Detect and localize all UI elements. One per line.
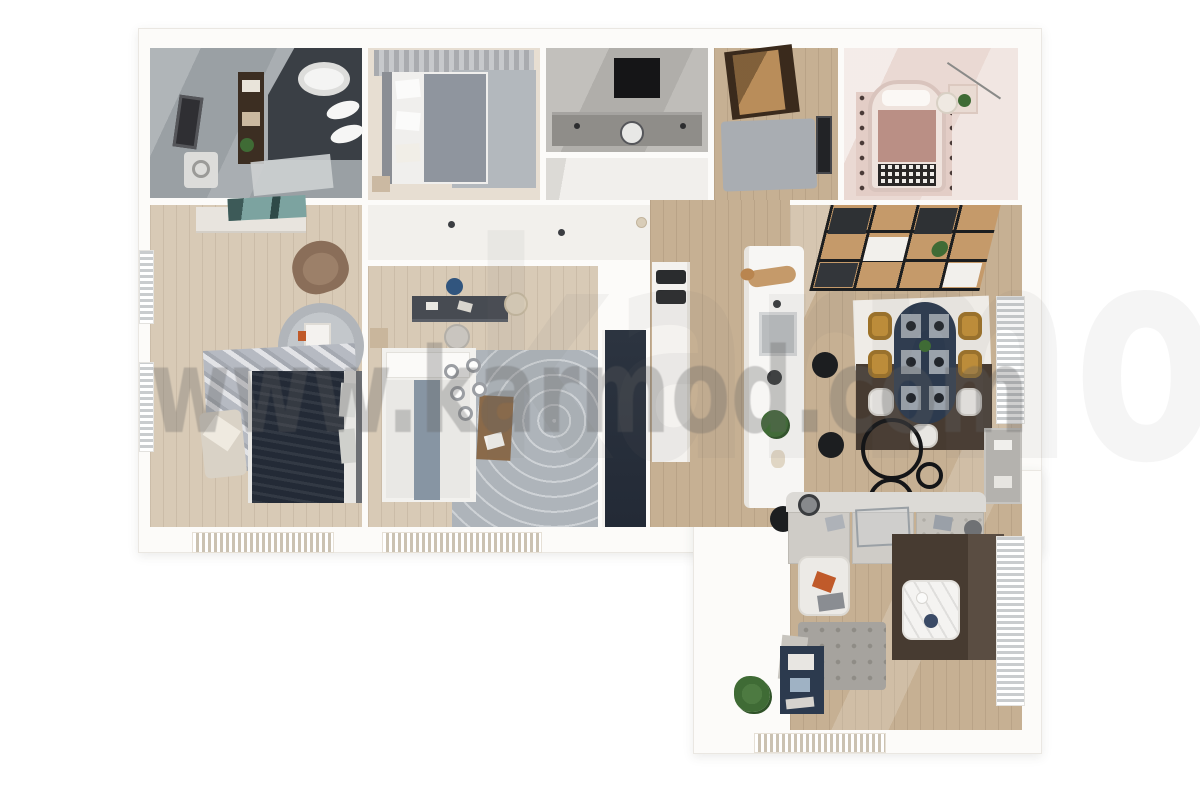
placemat — [901, 350, 921, 374]
floor-lamp-shade — [936, 92, 958, 114]
dining-chair-mustard — [868, 312, 892, 340]
kids-blanket — [878, 110, 936, 162]
washer-front — [620, 121, 644, 145]
window-dining — [996, 296, 1025, 424]
kitchen-cabinets — [652, 262, 690, 462]
placemat — [901, 314, 921, 338]
cooktop — [656, 290, 686, 304]
side-table-round — [798, 494, 820, 516]
blue-bowl — [446, 278, 463, 295]
pillow — [395, 111, 420, 131]
wall-screen — [614, 58, 660, 98]
table-deco-navy — [924, 614, 938, 628]
pendant-bulb — [458, 406, 473, 421]
utility-room — [546, 48, 708, 152]
entry-rug — [721, 118, 817, 191]
faucet-dot — [680, 123, 686, 129]
pendant-lamp-beige — [504, 292, 528, 316]
sideboard-deco — [994, 440, 1012, 450]
kids-pillow — [882, 90, 930, 106]
faucet-dot — [773, 300, 781, 308]
gray-throw — [817, 592, 845, 611]
desk-items — [457, 300, 473, 312]
pillow — [395, 143, 420, 163]
deco-orange — [298, 331, 306, 341]
plate — [934, 321, 944, 331]
desk-items — [426, 302, 438, 310]
headboard — [382, 72, 392, 184]
leaning-mirror — [816, 116, 832, 174]
ring-chandelier — [916, 462, 943, 489]
entry-hall — [714, 48, 838, 200]
throw-blanket — [414, 380, 440, 500]
folded-blanket — [203, 415, 241, 452]
pendant-dot — [636, 217, 647, 228]
bathroom-console — [238, 72, 264, 164]
wardrobe-navy — [602, 330, 646, 527]
placemat — [929, 386, 949, 410]
pendant-bulb — [466, 358, 481, 373]
plate — [934, 357, 944, 367]
shelf-dark-box — [913, 208, 957, 234]
cooktop — [656, 270, 686, 284]
washing-machine — [184, 152, 218, 188]
plate — [906, 393, 916, 403]
plant-small — [240, 138, 254, 152]
dining-chair-mustard — [868, 350, 892, 378]
placemat — [901, 386, 921, 410]
checkered-throw — [878, 164, 936, 186]
deco-vase — [771, 450, 785, 468]
wall-art — [227, 195, 306, 221]
pendant-dot — [558, 229, 565, 236]
bathroom — [150, 48, 362, 198]
table-deco-dish — [916, 592, 928, 604]
island-sink — [759, 312, 797, 356]
bench-ottoman — [199, 409, 248, 479]
duvet — [424, 74, 486, 182]
bed-navy — [248, 371, 360, 503]
bedroom-top — [368, 48, 540, 200]
placemat — [929, 350, 949, 374]
dining-chair-white — [956, 388, 982, 416]
shelf-white-box — [942, 263, 982, 287]
master-bedroom — [150, 205, 362, 527]
bar-stool — [818, 432, 844, 458]
bed-double — [382, 72, 488, 184]
window-exterior-south — [382, 532, 542, 553]
window-exterior-south — [192, 532, 334, 553]
desk-chair — [444, 324, 470, 350]
towel-stack — [242, 80, 260, 92]
plant-small — [958, 94, 971, 107]
kids-bed — [868, 80, 946, 192]
dining-table — [894, 302, 956, 424]
table-centerpiece — [919, 340, 931, 352]
ring-chandelier — [861, 418, 923, 480]
window-living — [996, 536, 1025, 706]
pendant-bulb — [450, 386, 465, 401]
coffee-table-marble — [902, 580, 960, 640]
sofa-pillow — [933, 515, 953, 532]
basket — [242, 112, 260, 126]
plate — [906, 357, 916, 367]
dining-chair-mustard — [958, 350, 982, 378]
dining-chair-white — [868, 388, 894, 416]
shelf-white-box — [863, 237, 909, 261]
floor-plan-render: karmod.com www.karmod.com — [0, 0, 1200, 800]
door-panel — [733, 50, 786, 115]
bed-double — [382, 348, 476, 502]
fruit-bowl — [767, 370, 782, 385]
pillow — [339, 428, 358, 463]
pendant-bulb — [444, 364, 459, 379]
pillow — [395, 79, 421, 99]
entry-door — [724, 44, 800, 120]
laundry-counter — [552, 112, 702, 146]
media-console-navy — [780, 646, 824, 714]
plate — [934, 393, 944, 403]
shelf-dark-box — [827, 208, 871, 234]
closet — [546, 158, 708, 200]
shelving-unit — [809, 205, 1000, 291]
console-item — [788, 654, 814, 670]
dog-head — [740, 267, 756, 281]
nightstand — [372, 176, 390, 192]
washer-door — [192, 160, 210, 178]
pillow — [339, 382, 357, 417]
armchair-white — [798, 556, 850, 616]
plate — [906, 321, 916, 331]
window-left — [139, 250, 154, 324]
armchair-cushion — [299, 248, 343, 290]
bathtub — [298, 62, 350, 96]
magazine — [484, 432, 505, 450]
console-item — [786, 697, 815, 710]
bath-rug — [250, 154, 333, 196]
desk — [412, 296, 508, 322]
sideboard-gray — [984, 428, 1022, 504]
navy-duvet — [252, 371, 344, 503]
shelf-plant — [930, 241, 950, 257]
bedroom-middle — [368, 266, 598, 527]
placemat — [929, 314, 949, 338]
faucet-dot — [574, 123, 580, 129]
headboard — [356, 371, 362, 503]
bar-stool — [812, 352, 838, 378]
sideboard-deco — [994, 476, 1012, 488]
pendant-dot — [448, 221, 455, 228]
floor-plant — [734, 676, 770, 712]
orange-pillow — [812, 571, 836, 593]
window-left — [139, 362, 154, 452]
bench-wood — [476, 395, 513, 461]
kids-room — [844, 48, 1018, 200]
island-plant — [761, 410, 788, 437]
pendant-bulb — [472, 382, 487, 397]
dining-chair-mustard — [958, 312, 982, 340]
console-item — [790, 678, 810, 692]
wall-frame — [172, 95, 203, 150]
deck-slats — [754, 733, 886, 753]
armchair — [285, 234, 354, 301]
shelf-dark-box — [814, 263, 858, 287]
nightstand — [370, 328, 388, 348]
